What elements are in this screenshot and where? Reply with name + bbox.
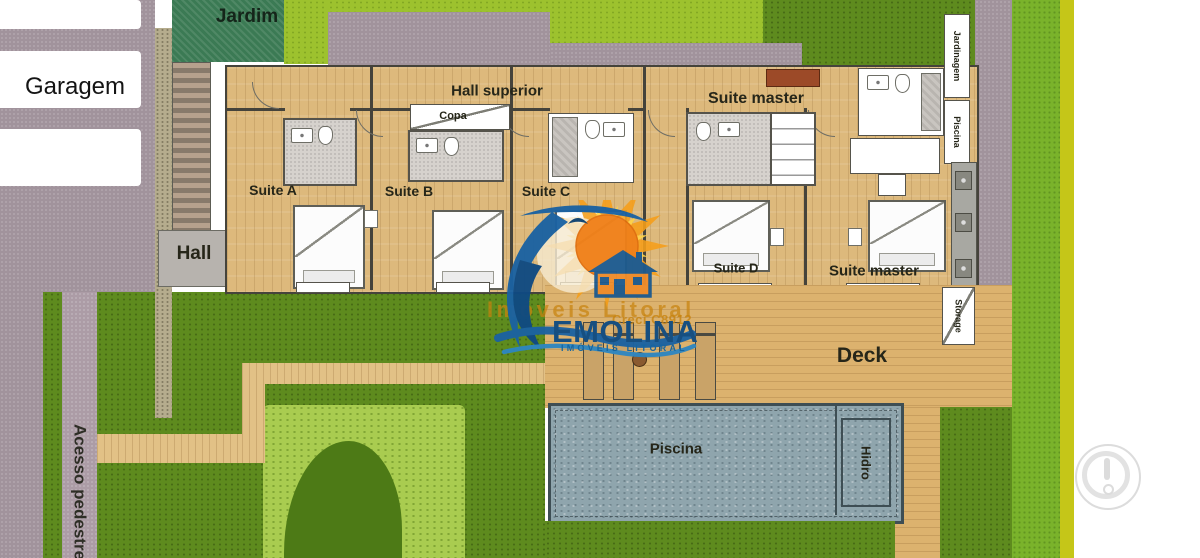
house-window-icon [600, 277, 609, 285]
house-window-icon [633, 277, 642, 285]
window [296, 282, 350, 293]
appliance-icon [955, 259, 972, 278]
piscina-side-label: Piscina [952, 116, 962, 148]
toilet-icon [895, 74, 910, 93]
swimming-pool: Hidro [548, 403, 904, 524]
stone-path [155, 28, 172, 418]
pool-divider [835, 406, 837, 515]
bathroom-suite-b [408, 130, 504, 182]
side-lawn-column [1012, 0, 1060, 558]
sink-icon [867, 75, 889, 90]
grass-below-pool [545, 521, 895, 558]
exclamation-icon [1075, 444, 1141, 510]
suite-master-top-label: Suite master [708, 90, 804, 108]
grass-right-of-deck [940, 407, 1012, 558]
appliance-icon [955, 213, 972, 232]
piscina-pool-label: Piscina [650, 441, 703, 458]
jardinagem-room: Jardinagem [944, 14, 970, 98]
shower-icon [552, 117, 578, 177]
bed-master [868, 200, 946, 272]
bench [766, 69, 820, 87]
hidro-tub: Hidro [841, 418, 891, 507]
desk-master [850, 138, 940, 174]
side-paving-path [975, 0, 1012, 287]
nightstand [770, 228, 784, 246]
hedge-strip [43, 292, 62, 558]
pedestrian-access-path: Acesso pedestre [62, 292, 97, 558]
cabinet-strip [951, 162, 977, 292]
garage-stall [0, 129, 141, 186]
shower-icon [921, 73, 941, 131]
storage-label: Storage [954, 299, 964, 333]
suite-a-label: Suite A [249, 182, 297, 198]
sink-icon [291, 128, 313, 143]
exclamation-dot [1103, 484, 1114, 495]
bathroom-suite-a [283, 118, 357, 186]
storage-room: Storage [942, 287, 975, 345]
toilet-icon [696, 122, 711, 141]
wall [628, 108, 646, 111]
window [436, 282, 490, 293]
bed-fold [694, 202, 768, 244]
chair-master [878, 174, 906, 196]
bed-suite-a [293, 205, 365, 289]
sink-icon [603, 122, 625, 137]
jardinagem-label: Jardinagem [952, 31, 962, 82]
hall-superior-label: Hall superior [451, 83, 543, 100]
closet-suite-d [770, 112, 816, 186]
hidro-label: Hidro [859, 446, 874, 480]
toilet-icon [318, 126, 333, 145]
bed-fold [295, 207, 363, 257]
floor-plan-image: Acesso pedestre [0, 0, 1200, 558]
garage-stall [0, 0, 141, 29]
wall [370, 65, 373, 290]
nightstand [364, 210, 378, 228]
left-paving-strip [0, 292, 43, 558]
appliance-icon [955, 171, 972, 190]
lime-grass-top [550, 0, 765, 43]
suite-b-label: Suite B [385, 183, 433, 199]
lime-grass-patch [284, 0, 332, 64]
exclamation-bar [1104, 458, 1110, 480]
suite-d-label: Suite D [714, 261, 759, 276]
jardim-label: Jardim [216, 6, 278, 28]
bed-fold [870, 202, 944, 244]
garagem-label: Garagem [25, 73, 125, 101]
sink-icon [718, 122, 740, 137]
top-paving [328, 12, 550, 65]
top-paving-band [550, 43, 802, 65]
property-boundary-strip [1060, 0, 1074, 558]
suite-master-bottom-label: Suite master [829, 263, 919, 280]
hall-label: Hall [177, 243, 212, 265]
toilet-icon [585, 120, 600, 139]
toilet-icon [444, 137, 459, 156]
nightstand [848, 228, 862, 246]
sink-icon [416, 138, 438, 153]
bathroom-suite-d [686, 112, 774, 186]
bathroom-master [858, 68, 944, 136]
garden-walkway-lower [97, 434, 265, 463]
bathroom-suite-c [548, 113, 634, 183]
house-chimney-icon [636, 252, 642, 264]
piscina-room: Piscina [944, 100, 970, 164]
copa-label: Copa [439, 110, 467, 122]
lime-grass-strip [328, 0, 550, 12]
watermark-tagline: IMÓVEIS LITORAL [561, 343, 688, 353]
acesso-pedestre-label: Acesso pedestre [70, 424, 90, 558]
house-door-icon [614, 279, 625, 296]
staircase [172, 62, 211, 232]
suite-c-label: Suite C [522, 183, 570, 199]
garden-walkway-upper [242, 363, 545, 384]
deck-label: Deck [837, 344, 887, 368]
